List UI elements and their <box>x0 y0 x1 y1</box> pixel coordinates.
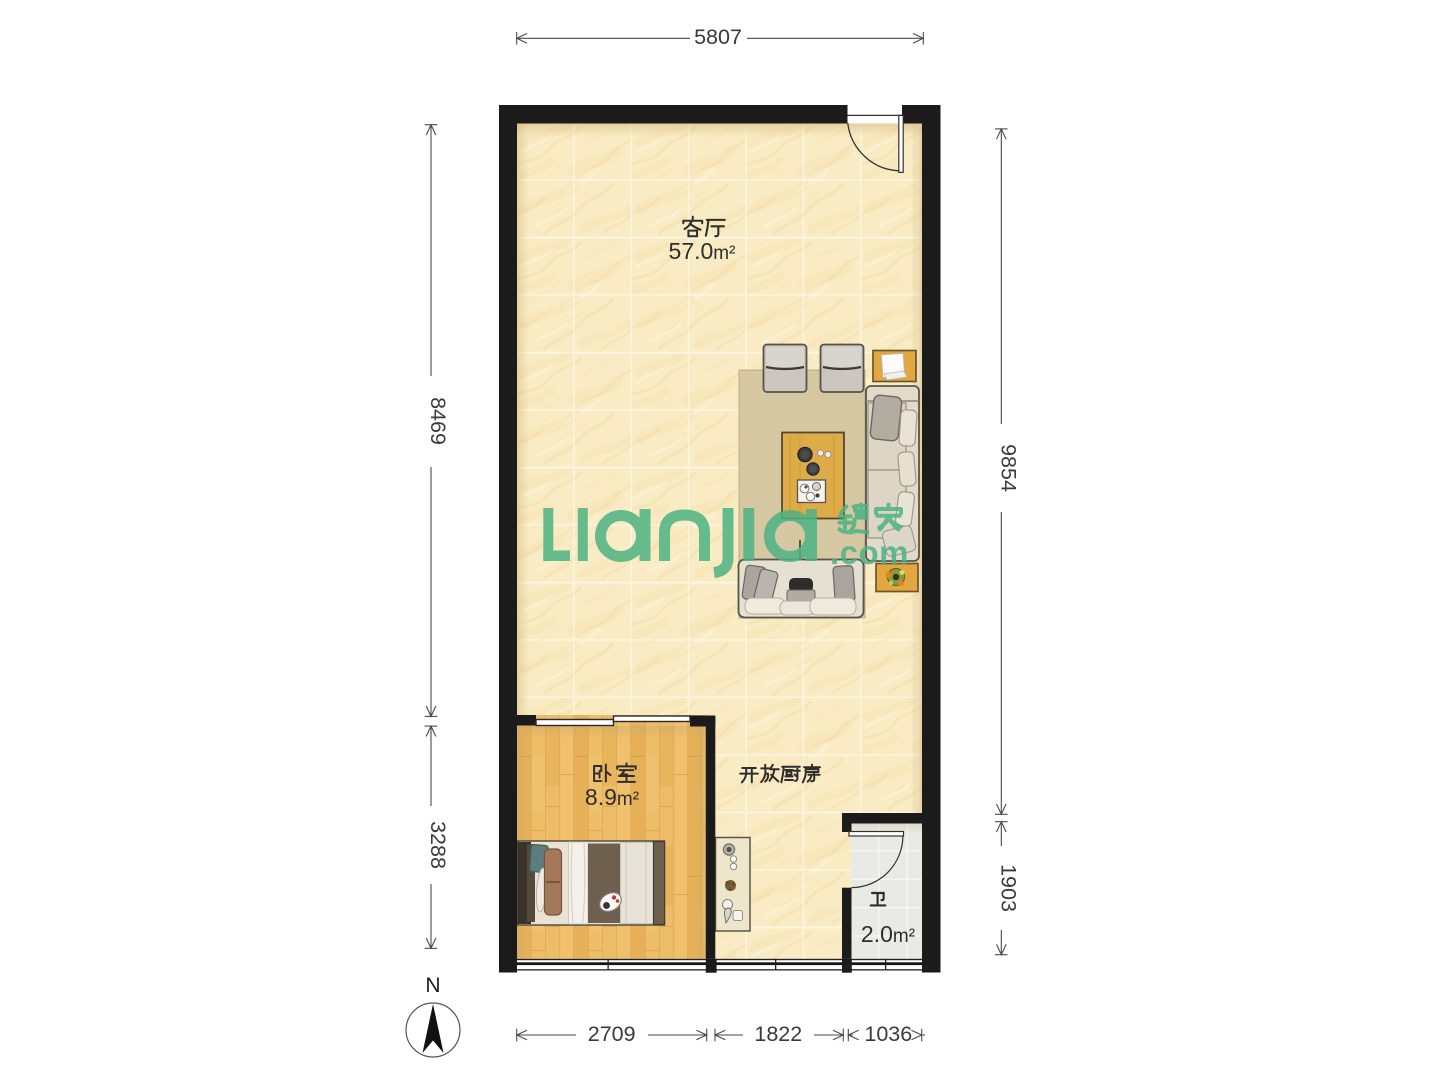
svg-text:N: N <box>425 974 440 997</box>
svg-text:.com: .com <box>830 534 909 571</box>
svg-text:8469: 8469 <box>426 397 450 445</box>
svg-text:5807: 5807 <box>694 25 742 49</box>
svg-text:1822: 1822 <box>754 1022 802 1046</box>
svg-text:9854: 9854 <box>996 444 1020 492</box>
svg-text:1036: 1036 <box>864 1022 912 1046</box>
svg-text:2709: 2709 <box>588 1022 636 1046</box>
svg-text:1903: 1903 <box>996 864 1020 912</box>
svg-text:3288: 3288 <box>426 821 450 869</box>
